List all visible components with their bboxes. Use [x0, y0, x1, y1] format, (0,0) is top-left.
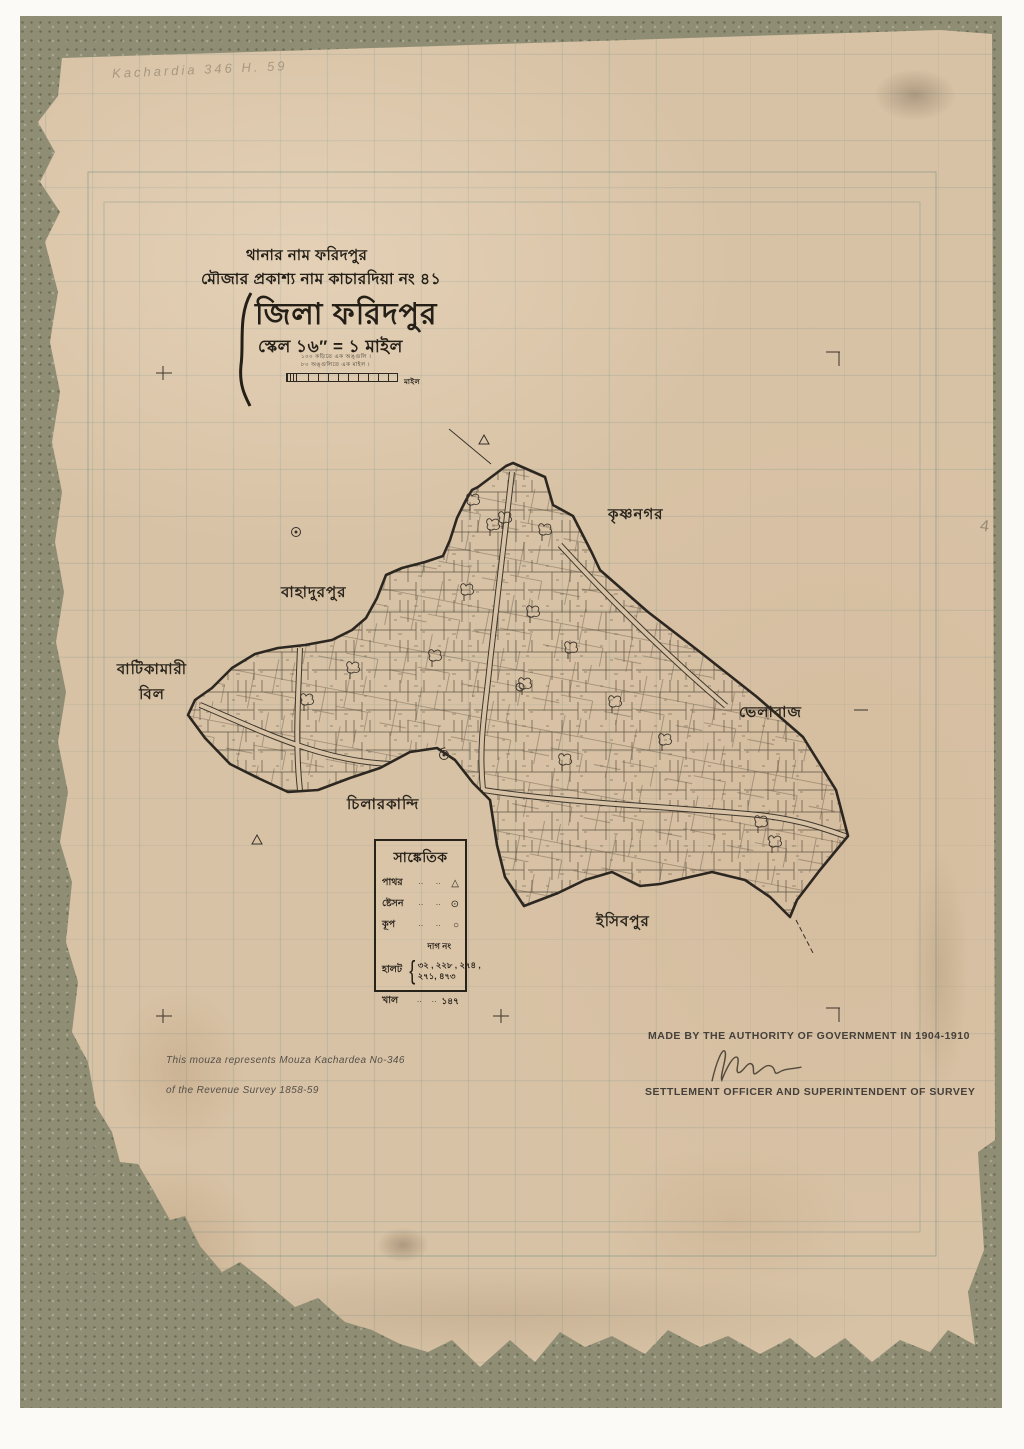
place-label-batikamari-bil: বাটিকামারী বিল: [108, 658, 196, 708]
triangle-station-icon: △: [447, 878, 459, 889]
brace-glyph: {: [409, 955, 415, 986]
scale-note-2: ৮০ অঙ্গুলিতে এক মাইল ।: [301, 362, 370, 368]
halot-numbers-line2: ২৭১, ৪৭৩: [418, 971, 456, 981]
legend-label: ষ্টেসন: [382, 897, 412, 912]
legend-box: সাঙ্কেতিক পাথর ·· ·· △ ষ্টেসন ·· ·· ⊙ কূ…: [374, 839, 467, 992]
station-triangle-icon: [252, 835, 262, 844]
scale-bar-divisions: [299, 374, 397, 381]
halot-numbers-line1: ৩২ , ২২৮ , ২৭৪ ,: [418, 960, 481, 970]
scale-unit-label: মাইল: [404, 376, 420, 388]
leader-dots: ··: [412, 997, 427, 1006]
leader-dots: ··: [430, 921, 448, 930]
leader-dots: ··: [412, 921, 430, 930]
place-label-bhelabaj: ভেলাবাজ: [739, 701, 802, 726]
legend-label: হালট: [382, 963, 408, 978]
legend-row-halot: হালট { ৩২ , ২২৮ , ২৭৪ ,২৭১, ৪৭৩: [382, 955, 459, 986]
leader-dots: ··: [430, 879, 448, 888]
legend-label: খাল: [382, 994, 412, 1009]
leader-dots: ··: [430, 900, 448, 909]
leader-dots: ··: [412, 900, 430, 909]
revenue-survey-note-line1: This mouza represents Mouza Kachardea No…: [166, 1055, 405, 1066]
station-triangle-icon: [479, 435, 489, 444]
dag-number-heading: দাগ নং: [382, 940, 451, 954]
halot-plot-numbers: ৩২ , ২২৮ , ২৭৪ ,২৭১, ৪৭৩: [418, 960, 481, 982]
scale-notes: ১০০ কড়িতে এক অঙ্গুলি ।৮০ অঙ্গুলিতে এক ম…: [301, 353, 371, 369]
scale-bar-subdivision: [287, 374, 299, 381]
circle-dot-station-icon: ⊙: [447, 899, 459, 910]
revenue-survey-note: This mouza represents Mouza Kachardea No…: [166, 1046, 405, 1106]
leader-dots: ··: [412, 879, 430, 888]
boundary-tail-dash: [796, 920, 813, 953]
place-label-isibpur: ইসিবপুর: [596, 910, 650, 935]
legend-row-khal: খাল ·· ·· ১৪৭: [382, 994, 459, 1009]
revenue-survey-note-line2: of the Revenue Survey 1858-59: [166, 1085, 319, 1096]
thana-name-line: থানার নাম ফরিদপুর: [246, 244, 367, 269]
title-bracket: [241, 293, 251, 406]
place-label-krishnanagar: কৃষ্ণনগর: [608, 503, 664, 528]
legend-row-steson: ষ্টেসন ·· ·· ⊙: [382, 897, 459, 912]
legend-label: কূপ: [382, 918, 412, 933]
authority-statement: MADE BY THE AUTHORITY OF GOVERNMENT IN 1…: [648, 1030, 970, 1042]
legend-row-kup: কূপ ·· ·· ○: [382, 918, 459, 933]
leader-dots: ··: [427, 997, 442, 1006]
place-label-bahadurpur: বাহাদুরপুর: [281, 581, 347, 606]
well-circle-icon: ○: [447, 920, 459, 931]
settlement-officer-line: SETTLEMENT OFFICER AND SUPERINTENDENT OF…: [645, 1086, 975, 1098]
scanned-survey-map-page: Kachardia 346 H. 59 4 থানার নাম ফরিদপুর …: [0, 0, 1024, 1449]
scale-bar: [286, 373, 398, 382]
place-label-chilarkandi: চিলারকান্দি: [347, 793, 419, 818]
survey-ray-line: [449, 429, 491, 464]
legend-label: পাথর: [382, 876, 412, 891]
legend-title: সাঙ্কেতিক: [382, 846, 459, 870]
scale-note-1: ১০০ কড়িতে এক অঙ্গুলি ।: [301, 354, 371, 360]
legend-row-pathor: পাথর ·· ·· △: [382, 876, 459, 891]
khal-plot-number: ১৪৭: [441, 994, 459, 1009]
signature: [700, 1042, 820, 1090]
